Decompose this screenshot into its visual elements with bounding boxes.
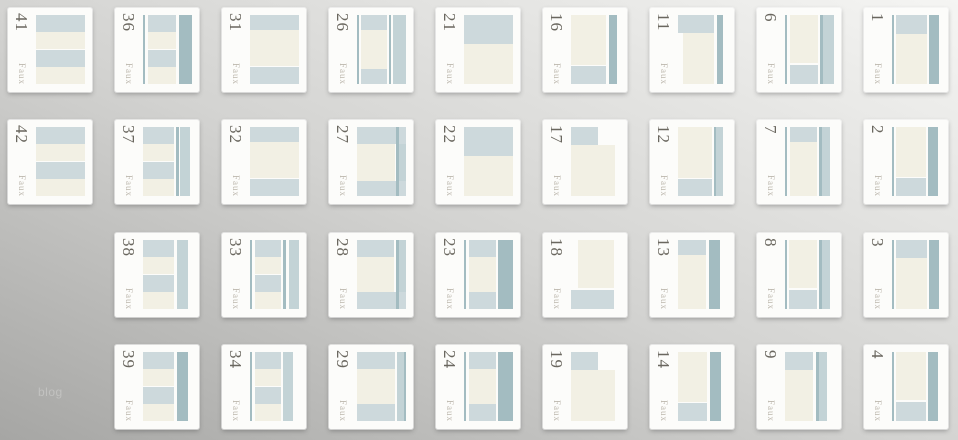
layout-card[interactable]: 28 Faux	[329, 233, 413, 317]
layout-card[interactable]: 34 Faux	[222, 345, 306, 429]
layout-region-light	[469, 404, 496, 421]
layout-region-light	[469, 352, 496, 369]
layout-region-dark	[785, 127, 787, 196]
layout-region-dark	[717, 15, 723, 84]
layout-region-dark	[710, 352, 721, 421]
layout-card[interactable]: 16 Faux	[543, 8, 627, 92]
layout-card[interactable]: 24 Faux	[436, 345, 520, 429]
layout-region-dark	[498, 240, 513, 309]
layout-region-cream	[678, 255, 706, 309]
layout-region-light	[36, 15, 85, 32]
card-number: 9	[762, 350, 779, 360]
card-watermark-label: Faux	[124, 63, 133, 85]
layout-thumbnail	[571, 15, 620, 84]
layout-region-cream	[143, 369, 174, 387]
layout-thumbnail	[571, 240, 620, 309]
layout-region-cream	[464, 44, 513, 84]
card-number: 22	[441, 125, 458, 144]
layout-region-light	[896, 15, 926, 34]
layout-thumbnail	[357, 127, 406, 196]
card-number: 12	[655, 125, 672, 144]
layout-thumbnail	[143, 127, 192, 196]
layout-region-light	[250, 15, 299, 30]
layout-region-mid	[819, 352, 827, 421]
layout-region-mid	[716, 127, 723, 196]
layout-card[interactable]: 2 Faux	[864, 120, 948, 204]
layout-region-dark	[464, 352, 466, 421]
layout-region-light	[143, 240, 174, 257]
layout-region-light	[896, 402, 925, 421]
layout-card[interactable]: 13 Faux	[650, 233, 734, 317]
layout-region-light	[678, 15, 714, 33]
layout-thumbnail	[892, 240, 941, 309]
layout-region-dark	[709, 240, 720, 309]
card-watermark-label: Faux	[552, 400, 561, 422]
layout-card[interactable]: 11 Faux	[650, 8, 734, 92]
layout-card[interactable]: 38 Faux	[115, 233, 199, 317]
layout-gallery: blog 41 Faux 42 Faux 36 Faux 37 Faux 38 …	[0, 0, 958, 440]
layout-thumbnail	[143, 352, 192, 421]
layout-thumbnail	[785, 240, 834, 309]
layout-region-cream	[578, 240, 614, 288]
layout-region-light	[143, 275, 174, 293]
layout-region-cream	[469, 369, 496, 405]
layout-region-light	[789, 290, 817, 309]
card-watermark-label: Faux	[659, 400, 668, 422]
layout-region-cream	[789, 240, 817, 288]
layout-region-mid	[399, 144, 406, 181]
layout-card[interactable]: 3 Faux	[864, 233, 948, 317]
layout-region-dark	[283, 240, 285, 309]
layout-region-cream	[357, 144, 395, 181]
layout-region-dark	[464, 240, 466, 309]
layout-region-cream	[357, 369, 395, 405]
layout-region-cream	[36, 32, 85, 50]
layout-card[interactable]: 6 Faux	[757, 8, 841, 92]
layout-region-cream	[143, 144, 174, 162]
card-number: 4	[869, 350, 886, 360]
layout-region-light	[143, 352, 174, 369]
layout-region-light	[785, 352, 813, 370]
layout-region-dark	[498, 352, 513, 421]
layout-thumbnail	[571, 352, 620, 421]
layout-card[interactable]: 41 Faux	[8, 8, 92, 92]
layout-region-light	[255, 275, 281, 293]
layout-region-cream	[143, 404, 174, 421]
card-number: 21	[441, 13, 458, 32]
layout-card[interactable]: 22 Faux	[436, 120, 520, 204]
layout-region-dark	[785, 240, 787, 309]
layout-thumbnail	[892, 127, 941, 196]
layout-region-dark	[389, 15, 391, 84]
card-watermark-label: Faux	[124, 288, 133, 310]
layout-region-cream	[896, 258, 926, 309]
layout-card[interactable]: 9 Faux	[757, 345, 841, 429]
layout-region-light	[790, 65, 818, 84]
layout-region-cream	[683, 33, 714, 84]
layout-region-light	[678, 240, 706, 255]
card-number: 27	[334, 125, 351, 144]
layout-thumbnail	[464, 127, 513, 196]
card-watermark-label: Faux	[445, 175, 454, 197]
layout-region-dark	[892, 127, 894, 196]
layout-card[interactable]: 19 Faux	[543, 345, 627, 429]
card-number: 14	[655, 350, 672, 369]
card-watermark-label: Faux	[873, 400, 882, 422]
layout-thumbnail	[357, 240, 406, 309]
layout-region-light	[357, 181, 406, 196]
layout-region-mid	[822, 127, 830, 196]
layout-region-cream	[571, 370, 615, 421]
layout-thumbnail	[785, 352, 834, 421]
layout-thumbnail	[464, 352, 513, 421]
card-number: 28	[334, 238, 351, 257]
layout-region-light	[464, 127, 513, 156]
layout-region-cream	[36, 179, 85, 196]
layout-thumbnail	[250, 240, 299, 309]
layout-region-light	[571, 290, 614, 309]
card-number: 39	[120, 350, 137, 369]
layout-thumbnail	[678, 352, 727, 421]
card-watermark-label: Faux	[338, 288, 347, 310]
layout-region-light	[36, 162, 85, 180]
layout-region-dark	[609, 15, 616, 84]
layout-region-cream	[250, 142, 299, 178]
layout-region-light	[148, 15, 176, 32]
layout-card[interactable]: 8 Faux	[757, 233, 841, 317]
layout-card[interactable]: 36 Faux	[115, 8, 199, 92]
layout-thumbnail	[36, 15, 85, 84]
layout-region-dark	[179, 15, 192, 84]
layout-thumbnail	[36, 127, 85, 196]
layout-region-light	[255, 387, 281, 405]
layout-region-cream	[250, 30, 299, 66]
layout-thumbnail	[357, 352, 406, 421]
layout-thumbnail	[678, 15, 727, 84]
card-watermark-label: Faux	[445, 288, 454, 310]
layout-card[interactable]: 23 Faux	[436, 233, 520, 317]
card-number: 41	[13, 13, 30, 32]
layout-card[interactable]: 31 Faux	[222, 8, 306, 92]
layout-region-light	[36, 50, 85, 68]
layout-region-mid	[822, 240, 830, 309]
layout-card[interactable]: 18 Faux	[543, 233, 627, 317]
layout-thumbnail	[464, 15, 513, 84]
layout-card[interactable]: 39 Faux	[115, 345, 199, 429]
card-watermark-label: Faux	[338, 175, 347, 197]
layout-region-cream	[678, 352, 707, 402]
layout-region-cream	[255, 257, 281, 275]
layout-region-dark	[928, 352, 938, 421]
card-watermark-label: Faux	[873, 175, 882, 197]
layout-card[interactable]: 12 Faux	[650, 120, 734, 204]
card-number: 36	[120, 13, 137, 32]
layout-region-cream	[896, 34, 926, 84]
layout-region-light	[678, 179, 712, 196]
card-watermark-label: Faux	[873, 288, 882, 310]
card-number: 24	[441, 350, 458, 369]
layout-card[interactable]: 29 Faux	[329, 345, 413, 429]
card-watermark-label: Faux	[445, 400, 454, 422]
layout-region-cream	[143, 179, 174, 196]
card-watermark-label: Faux	[659, 288, 668, 310]
layout-region-light	[469, 240, 496, 257]
layout-region-dark	[250, 240, 252, 309]
layout-region-cream	[143, 257, 174, 275]
layout-region-cream	[255, 404, 281, 421]
layout-region-light	[143, 162, 174, 180]
layout-region-dark	[892, 15, 894, 84]
layout-region-dark	[143, 15, 145, 84]
layout-region-cream	[464, 156, 513, 196]
layout-card[interactable]: 33 Faux	[222, 233, 306, 317]
card-watermark-label: Faux	[873, 63, 882, 85]
card-watermark-label: Faux	[552, 175, 561, 197]
card-number: 13	[655, 238, 672, 257]
layout-thumbnail	[143, 15, 192, 84]
layout-region-cream	[36, 144, 85, 162]
layout-region-light	[255, 352, 281, 369]
layout-region-dark	[250, 352, 252, 421]
card-watermark-label: Faux	[231, 63, 240, 85]
layout-region-light	[469, 292, 496, 309]
card-number: 31	[227, 13, 244, 32]
layout-card[interactable]: 27 Faux	[329, 120, 413, 204]
layout-region-light	[896, 178, 925, 196]
layout-thumbnail	[464, 240, 513, 309]
layout-region-mid	[283, 352, 293, 421]
layout-region-cream	[148, 32, 176, 50]
layout-thumbnail	[785, 127, 834, 196]
layout-thumbnail	[678, 240, 727, 309]
card-watermark-label: Faux	[766, 288, 775, 310]
layout-region-cream	[571, 145, 615, 196]
blog-link[interactable]: blog	[38, 385, 63, 399]
card-number: 32	[227, 125, 244, 144]
layout-region-light	[571, 352, 598, 370]
card-watermark-label: Faux	[445, 63, 454, 85]
card-number: 29	[334, 350, 351, 369]
layout-region-dark	[177, 352, 188, 421]
layout-thumbnail	[571, 127, 620, 196]
card-watermark-label: Faux	[231, 400, 240, 422]
layout-region-cream	[896, 352, 925, 400]
card-number: 7	[762, 125, 779, 135]
layout-region-cream	[148, 67, 176, 84]
layout-thumbnail	[785, 15, 834, 84]
card-number: 18	[548, 238, 565, 257]
layout-region-cream	[255, 292, 281, 309]
layout-region-light	[571, 127, 598, 145]
card-number: 38	[120, 238, 137, 257]
card-watermark-label: Faux	[766, 175, 775, 197]
layout-region-dark	[929, 15, 939, 84]
card-number: 8	[762, 238, 779, 248]
card-watermark-label: Faux	[17, 175, 26, 197]
layout-region-light	[357, 404, 395, 421]
layout-region-light	[250, 67, 299, 84]
layout-thumbnail	[678, 127, 727, 196]
layout-region-mid	[399, 240, 406, 292]
layout-region-light	[361, 69, 387, 84]
layout-region-cream	[255, 369, 281, 387]
layout-region-light	[250, 179, 299, 196]
layout-region-mid	[823, 15, 834, 84]
layout-region-light	[357, 352, 395, 369]
card-number: 3	[869, 238, 886, 248]
card-watermark-label: Faux	[766, 400, 775, 422]
layout-region-light	[36, 127, 85, 144]
layout-region-light	[357, 127, 406, 144]
layout-region-cream	[896, 127, 925, 177]
layout-region-mid	[177, 240, 188, 309]
layout-region-light	[143, 127, 174, 144]
card-number: 17	[548, 125, 565, 144]
layout-card[interactable]: 37 Faux	[115, 120, 199, 204]
layout-region-light	[790, 127, 817, 142]
card-watermark-label: Faux	[17, 63, 26, 85]
layout-region-mid	[393, 15, 406, 84]
card-number: 42	[13, 125, 30, 144]
layout-card[interactable]: 7 Faux	[757, 120, 841, 204]
layout-region-light	[143, 387, 174, 405]
layout-region-dark	[929, 240, 939, 309]
layout-region-light	[361, 15, 387, 30]
card-number: 37	[120, 125, 137, 144]
layout-thumbnail	[143, 240, 192, 309]
layout-thumbnail	[892, 352, 941, 421]
layout-thumbnail	[250, 15, 299, 84]
card-watermark-label: Faux	[124, 400, 133, 422]
layout-region-dark	[357, 15, 359, 84]
card-watermark-label: Faux	[552, 63, 561, 85]
layout-card[interactable]: 1 Faux	[864, 8, 948, 92]
layout-region-dark	[892, 240, 894, 309]
layout-card[interactable]: 17 Faux	[543, 120, 627, 204]
layout-card[interactable]: 21 Faux	[436, 8, 520, 92]
card-watermark-label: Faux	[231, 175, 240, 197]
layout-card[interactable]: 32 Faux	[222, 120, 306, 204]
layout-region-cream	[143, 292, 174, 309]
layout-region-dark	[176, 127, 178, 196]
layout-card[interactable]: 14 Faux	[650, 345, 734, 429]
layout-region-light	[464, 15, 513, 44]
card-watermark-label: Faux	[338, 63, 347, 85]
layout-region-cream	[36, 67, 85, 84]
layout-thumbnail	[250, 352, 299, 421]
card-number: 2	[869, 125, 886, 135]
card-number: 11	[655, 13, 672, 31]
layout-region-light	[255, 240, 281, 257]
layout-region-cream	[790, 15, 818, 63]
layout-region-mid	[180, 127, 190, 196]
layout-region-mid	[397, 352, 404, 421]
card-watermark-label: Faux	[659, 63, 668, 85]
card-watermark-label: Faux	[552, 288, 561, 310]
layout-region-dark	[892, 352, 894, 421]
layout-region-dark	[785, 15, 787, 84]
card-number: 23	[441, 238, 458, 257]
card-number: 34	[227, 350, 244, 369]
layout-region-dark	[404, 352, 406, 421]
layout-thumbnail	[892, 15, 941, 84]
layout-region-light	[357, 292, 406, 309]
card-number: 19	[548, 350, 565, 369]
card-watermark-label: Faux	[231, 288, 240, 310]
card-watermark-label: Faux	[659, 175, 668, 197]
layout-thumbnail	[250, 127, 299, 196]
layout-region-cream	[469, 257, 496, 293]
card-number: 16	[548, 13, 565, 32]
layout-region-cream	[361, 30, 387, 69]
layout-card[interactable]: 26 Faux	[329, 8, 413, 92]
layout-region-dark	[928, 127, 938, 196]
card-watermark-label: Faux	[338, 400, 347, 422]
card-number: 1	[869, 13, 886, 23]
card-watermark-label: Faux	[124, 175, 133, 197]
card-number: 26	[334, 13, 351, 32]
layout-region-mid	[289, 240, 299, 309]
card-watermark-label: Faux	[766, 63, 775, 85]
layout-thumbnail	[357, 15, 406, 84]
layout-region-cream	[785, 370, 813, 421]
layout-card[interactable]: 4 Faux	[864, 345, 948, 429]
layout-region-cream	[357, 257, 394, 293]
layout-card[interactable]: 42 Faux	[8, 120, 92, 204]
layout-region-light	[896, 240, 926, 258]
layout-region-light	[250, 127, 299, 142]
layout-region-light	[148, 50, 176, 68]
card-number: 33	[227, 238, 244, 257]
layout-region-light	[678, 403, 707, 421]
layout-region-light	[571, 66, 606, 84]
layout-region-cream	[790, 142, 817, 196]
layout-region-cream	[571, 15, 606, 65]
layout-region-cream	[678, 127, 712, 178]
card-number: 6	[762, 13, 779, 23]
layout-region-light	[357, 240, 394, 257]
